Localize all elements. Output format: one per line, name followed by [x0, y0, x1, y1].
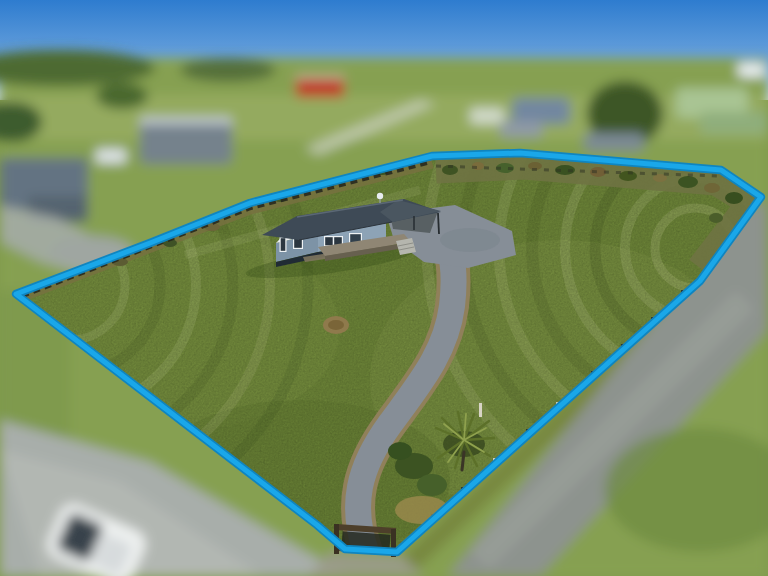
background-house [96, 149, 126, 163]
background-house [738, 63, 765, 77]
window-glass [325, 237, 333, 245]
satellite-dish [377, 193, 383, 199]
background-house [500, 121, 542, 137]
background-house [140, 124, 232, 164]
bush [709, 213, 723, 223]
bush [725, 192, 743, 204]
bush-cluster [388, 442, 412, 460]
gravel-shade [440, 228, 500, 252]
window-glass [281, 238, 286, 251]
background-house [700, 112, 768, 134]
photo-canvas [0, 0, 768, 576]
aerial-property-photo [0, 0, 768, 576]
cabbage-tree-trunk [462, 452, 464, 470]
background-house [512, 98, 570, 124]
background-house [470, 108, 504, 124]
fence-post [479, 403, 482, 417]
horizon-treeline [180, 58, 276, 82]
bush [704, 183, 720, 193]
red-barn [296, 79, 344, 97]
background-tree [96, 83, 148, 109]
background-house [584, 133, 644, 151]
dirt-patch [328, 320, 344, 330]
bush-cluster [417, 474, 447, 496]
carport-post [438, 213, 439, 234]
bush [678, 176, 698, 188]
